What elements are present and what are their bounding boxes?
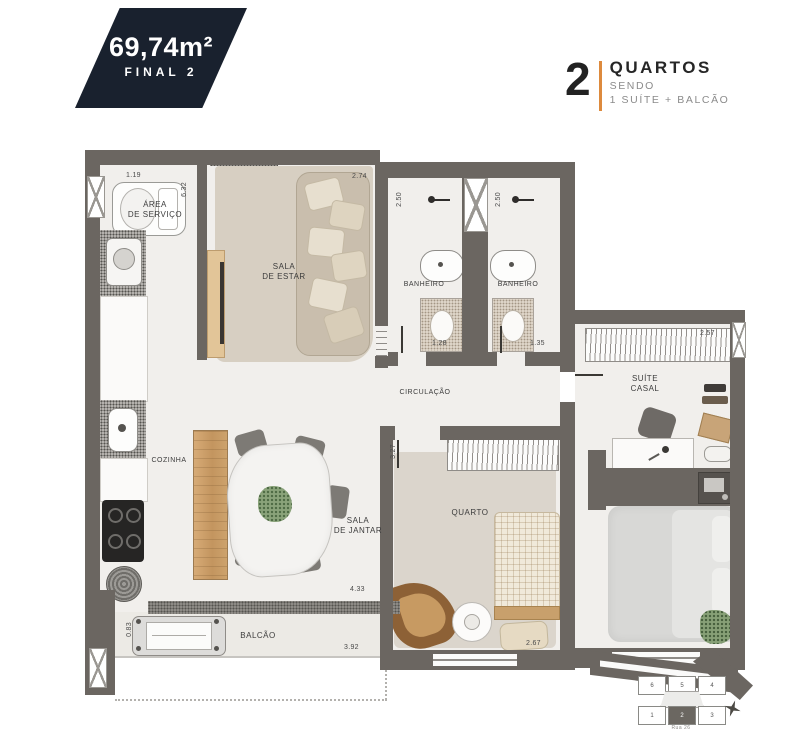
dim-jantar-width: 4.33 xyxy=(350,586,365,593)
room-label-sala-estar: SALA DE ESTAR xyxy=(252,262,316,283)
wall-sala-right xyxy=(375,356,388,368)
room-label-sala-jantar: SALA DE JANTAR xyxy=(330,516,386,537)
wall-bedroom-top xyxy=(380,426,395,440)
shaft xyxy=(87,176,105,218)
legend-subtitle-2: 1 SUÍTE + BALCÃO xyxy=(610,94,730,106)
unit-legend: 2 QUARTOS SENDO 1 SUÍTE + BALCÃO xyxy=(565,58,729,111)
balcony-counter-ledge xyxy=(148,601,400,614)
bedroom-window xyxy=(433,654,517,666)
wall-sala-left xyxy=(197,164,207,360)
washing-machine-door xyxy=(113,248,135,270)
grill-bolt xyxy=(136,646,141,651)
dim-suite-width: 2.57 xyxy=(700,330,715,337)
keyplan-unit-6: 6 xyxy=(638,676,666,695)
cooktop-burner xyxy=(126,508,141,523)
wall-circulation-top xyxy=(426,352,497,366)
dim-quarto-width: 2.67 xyxy=(526,640,541,647)
dim-banheiro1-width: 1.28 xyxy=(432,340,447,347)
kitchen-counter xyxy=(100,296,148,402)
terrace-dotted-boundary xyxy=(115,699,387,701)
single-bed-foot-bench xyxy=(494,606,560,620)
sofa-cushion xyxy=(330,250,368,283)
sink-faucet-icon xyxy=(118,424,126,432)
door-leaf-bathroom1 xyxy=(401,326,403,353)
wall-circulation-top xyxy=(525,352,560,366)
entry-door-threshold xyxy=(376,330,387,356)
wall xyxy=(85,150,100,610)
balcony-open-edge xyxy=(115,656,380,658)
wall-bedroom-left xyxy=(380,440,393,670)
wall xyxy=(85,150,380,165)
room-label-banheiro-1: BANHEIRO xyxy=(398,280,450,289)
badge-final-value: FINAL 2 xyxy=(75,65,247,79)
table-plant xyxy=(258,486,292,522)
room-label-balcao: BALCÃO xyxy=(228,631,288,641)
door-leaf-suite xyxy=(575,374,603,376)
suite-plant xyxy=(700,610,734,644)
wall-suite-left xyxy=(560,324,575,372)
tv-icon xyxy=(220,262,224,344)
dim-estar-width: 2.74 xyxy=(352,173,367,180)
island-counter xyxy=(193,430,228,580)
bed-pillow xyxy=(712,516,732,562)
room-label-suite-casal: SUÍTE CASAL xyxy=(612,374,678,395)
keyplan-unit-1: 1 xyxy=(638,706,666,725)
shower-arm-icon xyxy=(518,199,534,201)
legend-accent-bar xyxy=(599,61,602,111)
shaft xyxy=(89,648,107,688)
dim-balcao-height: 0.83 xyxy=(126,622,133,637)
floorplan-page: 69,74m² FINAL 2 2 QUARTOS SENDO 1 SUÍTE … xyxy=(0,0,803,741)
door-leaf-bedroom xyxy=(397,440,399,468)
wall-suite-left xyxy=(560,402,575,666)
legend-title: QUARTOS xyxy=(610,58,730,78)
keyplan-caption: Rua 26 xyxy=(658,725,704,731)
shower-arm-icon xyxy=(434,199,450,201)
single-bed xyxy=(494,512,560,608)
legend-number: 2 xyxy=(565,58,591,102)
badge-area-value: 69,74m² xyxy=(75,32,247,63)
shaft xyxy=(464,178,488,232)
area-badge: 69,74m² FINAL 2 xyxy=(75,8,247,108)
room-label-banheiro-2: BANHEIRO xyxy=(492,280,544,289)
cooktop-burner xyxy=(108,508,123,523)
wall-bedroom-top xyxy=(440,426,560,440)
keyplan-unit-2-highlighted: 2 xyxy=(668,706,696,725)
dim-balcao-width: 3.92 xyxy=(344,644,359,651)
desk-item xyxy=(662,446,669,453)
shaft xyxy=(732,322,746,358)
dim-servico-height: 6.32 xyxy=(181,182,188,197)
suite-closet-basket xyxy=(704,446,732,462)
grill-bolt xyxy=(214,646,219,651)
keyplan: 6 5 4 1 2 3 Rua 26 xyxy=(634,676,734,730)
dim-banheiro2-height: 2.50 xyxy=(495,192,502,207)
bedroom-wardrobe xyxy=(447,437,559,471)
door-leaf-bathroom2 xyxy=(500,326,502,353)
wall-sala-right xyxy=(375,164,388,326)
wall-circulation-top xyxy=(388,352,398,366)
bathroom2-basin-icon xyxy=(509,262,514,267)
wall xyxy=(730,310,745,670)
wall xyxy=(560,310,745,324)
room-label-area-servico: ÁREA DE SERVIÇO xyxy=(118,200,192,221)
dim-banheiro1-height: 2.50 xyxy=(396,192,403,207)
cooktop-burner xyxy=(126,534,141,549)
wall xyxy=(560,162,575,324)
dim-banheiro2-width: 1.35 xyxy=(530,340,545,347)
keyplan-unit-4: 4 xyxy=(698,676,726,695)
suite-tv-knob xyxy=(722,494,728,500)
kitchen-counter xyxy=(100,458,148,502)
keyplan-unit-3: 3 xyxy=(698,706,726,725)
room-label-cozinha: COZINHA xyxy=(146,456,192,465)
grill-lid xyxy=(146,622,212,650)
grill-bolt xyxy=(214,619,219,624)
dim-servico-width: 1.19 xyxy=(126,172,141,179)
bathroom1-toilet xyxy=(430,310,454,342)
room-label-quarto: QUARTO xyxy=(444,508,496,518)
suite-tv-icon xyxy=(704,478,724,492)
suite-closet-shelf xyxy=(704,384,726,392)
bathroom2-toilet xyxy=(501,310,525,342)
bathroom1-basin-icon xyxy=(438,262,443,267)
cooktop-burner xyxy=(108,534,123,549)
legend-subtitle-1: SENDO xyxy=(610,80,730,92)
dim-quarto-height: 3.27 xyxy=(390,444,397,459)
sofa-cushion xyxy=(328,199,366,231)
suite-closet-shelf xyxy=(702,396,728,404)
round-side-table-center xyxy=(464,614,480,630)
room-label-circulacao: CIRCULAÇÃO xyxy=(392,388,458,397)
grill-bolt xyxy=(136,619,141,624)
bed-pillow xyxy=(712,568,732,614)
bedroom-chair xyxy=(499,620,549,651)
